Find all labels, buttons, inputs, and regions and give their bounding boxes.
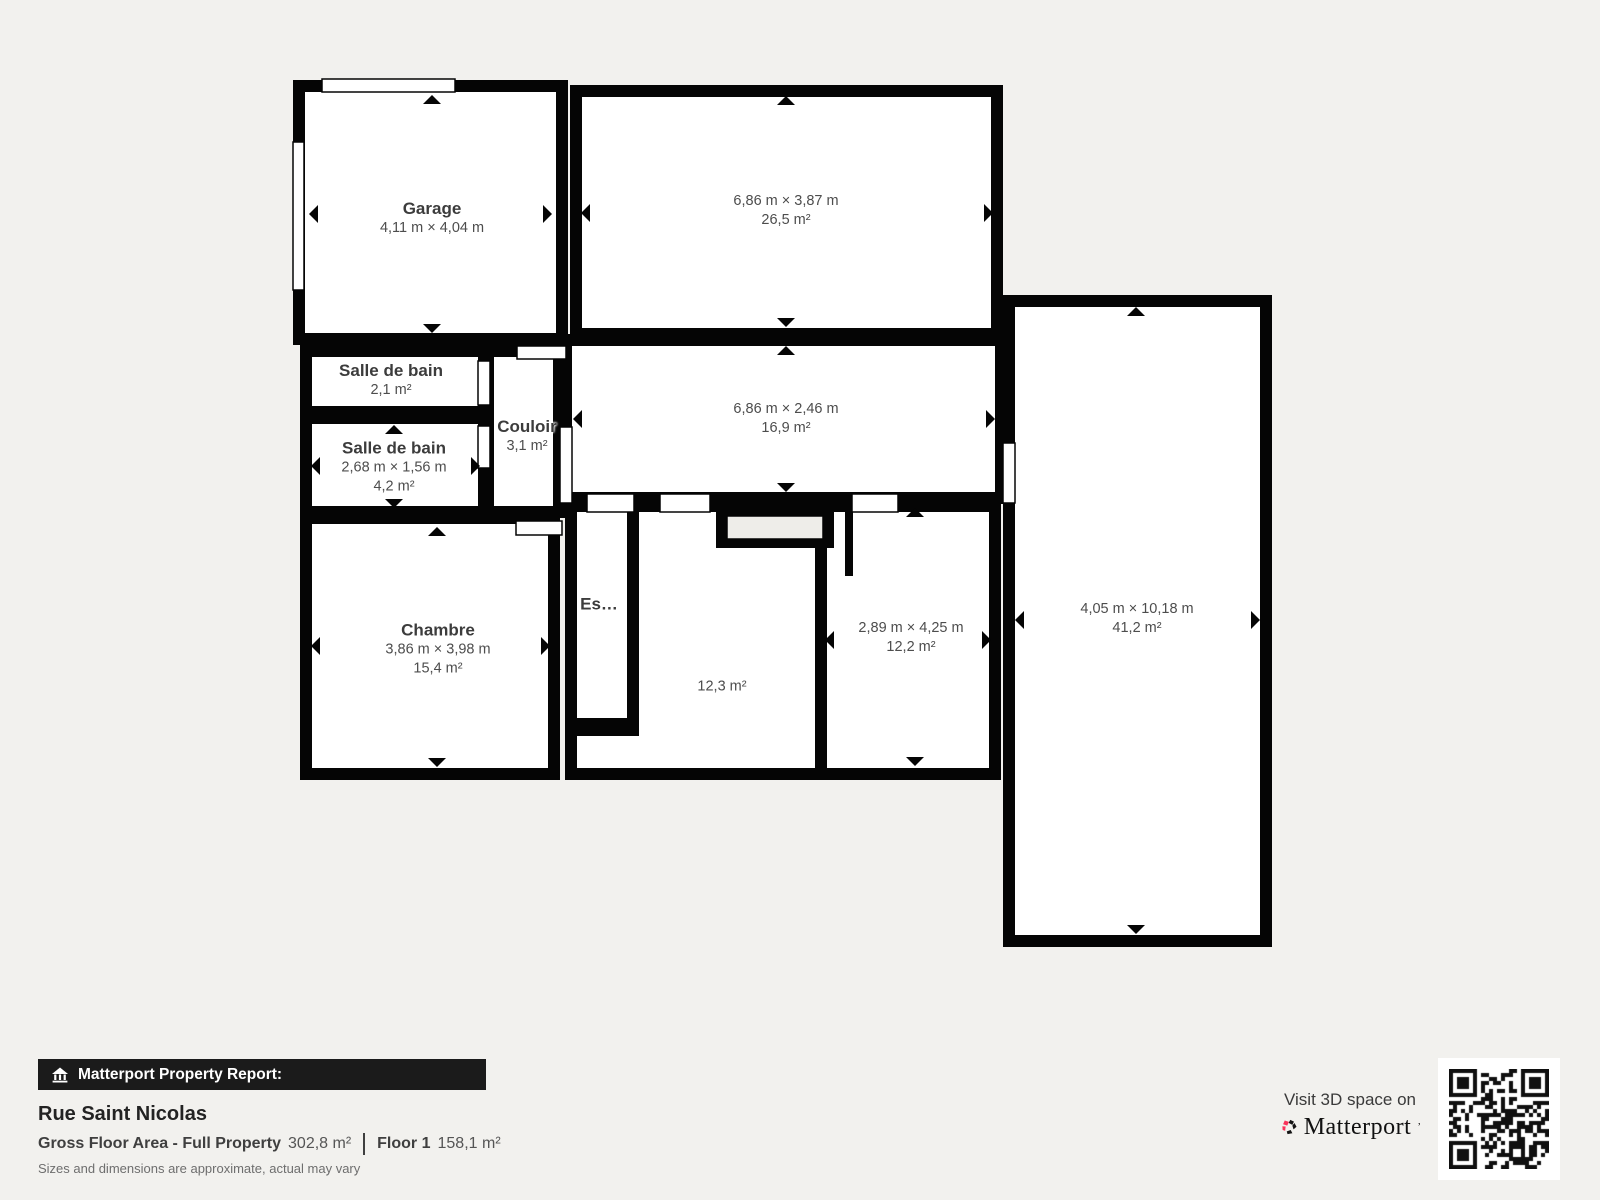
matterport-logo: Matterport’: [1281, 1110, 1421, 1144]
home-icon: [51, 1067, 69, 1083]
hallway-door-1: [478, 361, 490, 405]
room-middle-right: [566, 340, 1001, 498]
wall-stub: [845, 504, 853, 576]
bottom-right-door: [852, 494, 898, 512]
room-garage: [299, 86, 562, 339]
garage-window: [293, 142, 304, 290]
room-bedroom: [306, 518, 554, 774]
right-wing-door: [1003, 443, 1015, 503]
trademark-tick: ’: [1417, 1122, 1421, 1132]
matterport-pinwheel-icon: [1281, 1113, 1298, 1141]
floor-plan: [0, 0, 1600, 1200]
room-top-right: [576, 91, 997, 334]
gfa-value: 302,8 m²: [288, 1135, 351, 1153]
matterport-wordmark: Matterport: [1304, 1114, 1412, 1141]
qr-code: [1438, 1058, 1560, 1180]
room-right-wing: [1009, 301, 1266, 941]
bottom-middle-door: [660, 494, 710, 512]
property-report-page: Garage 4,11 m × 4,04 m 6,86 m × 3,87 m 2…: [0, 0, 1600, 1200]
report-badge: Matterport Property Report:: [38, 1059, 486, 1090]
hallway-top-door: [517, 346, 566, 359]
room-bathroom-small: [306, 351, 484, 412]
garage-door-opening: [322, 79, 455, 92]
gfa-label: Gross Floor Area - Full Property: [38, 1135, 281, 1153]
floor-value: 158,1 m²: [438, 1135, 501, 1153]
floor-label: Floor 1: [377, 1135, 430, 1153]
bedroom-door: [516, 521, 562, 535]
room-hallway: [488, 351, 559, 512]
hallway-door-2: [478, 426, 490, 468]
stair-door: [587, 494, 634, 512]
report-badge-label: Matterport Property Report:: [78, 1066, 282, 1084]
visit-3d-text: Visit 3D space on: [1280, 1090, 1420, 1110]
property-name: Rue Saint Nicolas: [38, 1103, 207, 1126]
stats-divider: [363, 1133, 365, 1155]
middle-room-door: [560, 427, 572, 503]
report-stats: Gross Floor Area - Full Property 302,8 m…: [38, 1133, 501, 1155]
stair-niche: [716, 504, 834, 548]
disclaimer-text: Sizes and dimensions are approximate, ac…: [38, 1161, 360, 1176]
